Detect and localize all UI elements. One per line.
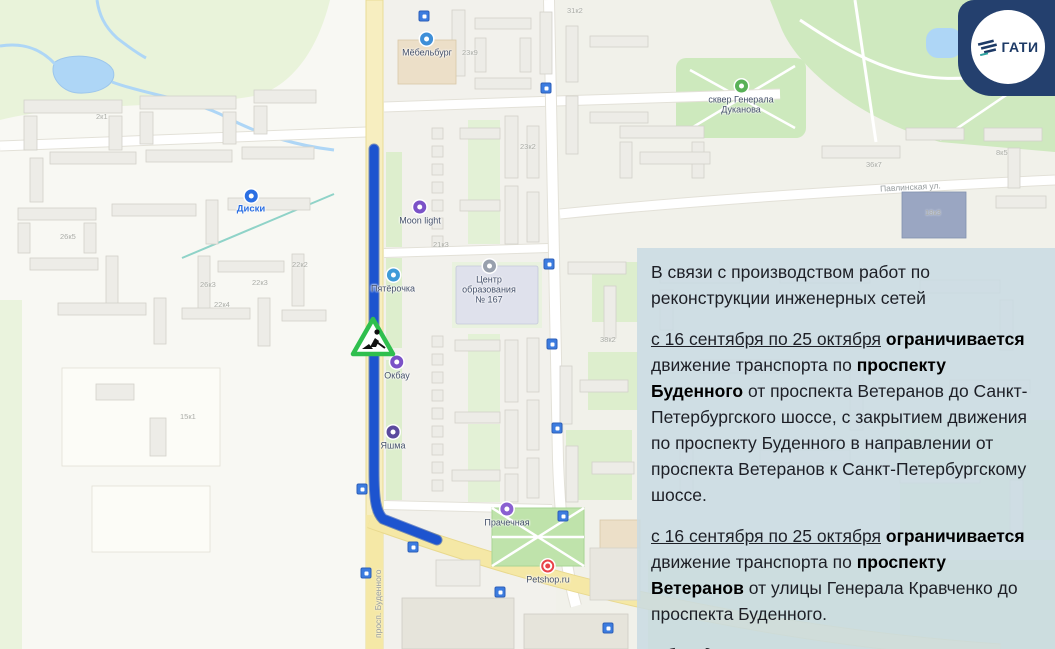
poi-yashma[interactable]: Яшма: [381, 426, 406, 451]
text-segment: В связи с производством работ по реконст…: [651, 262, 930, 308]
poi-icon: [501, 503, 514, 516]
poi-label: Окбау: [384, 371, 410, 381]
text-segment: Объезд: проспект Ветеранов.: [651, 645, 905, 649]
poi-label: Диски: [237, 205, 266, 215]
bus-stop-icon[interactable]: [541, 83, 552, 94]
bus-stop-icon[interactable]: [419, 11, 430, 22]
map-container[interactable]: Диски Мёбельбург Moon light Пятёрочка Це…: [0, 0, 1055, 649]
roadworks-triangle-icon: [350, 316, 396, 358]
panel-paragraph: с 16 сентября по 25 октября ограничивает…: [651, 523, 1039, 627]
building-label: 21к3: [433, 240, 449, 249]
poi-icon: [420, 33, 433, 46]
poi-label: сквер Генерала Дуканова: [698, 95, 784, 115]
poi-skver-dukanova[interactable]: сквер Генерала Дуканова: [698, 80, 784, 115]
poi-mebelburg[interactable]: Мёбельбург: [402, 33, 452, 58]
street-label-budennogo: просп. Буденного: [373, 570, 383, 638]
text-segment: движение транспорта по: [651, 552, 857, 572]
poi-icon: [387, 269, 400, 282]
bus-stop-icon[interactable]: [361, 568, 372, 579]
text-segment: движение транспорта по: [651, 355, 857, 375]
text-segment: ограничивается: [886, 526, 1025, 546]
text-segment: с 16 сентября по 25 октября: [651, 329, 881, 349]
building-label: 38к2: [600, 335, 616, 344]
bus-stop-icon[interactable]: [408, 542, 419, 553]
text-segment: ограничивается: [886, 329, 1025, 349]
poi-icon: [386, 426, 399, 439]
poi-label: Мёбельбург: [402, 48, 452, 58]
gati-stripes-icon: [977, 38, 999, 56]
panel-paragraph: с 16 сентября по 25 октября ограничивает…: [651, 326, 1039, 508]
building-label: 22к3: [252, 278, 268, 287]
gati-logo-circle: ГАТИ: [971, 10, 1045, 84]
bus-stop-icon[interactable]: [357, 484, 368, 495]
bus-stop-icon[interactable]: [603, 623, 614, 634]
bus-stop-icon[interactable]: [558, 511, 569, 522]
building-label: 15к1: [180, 412, 196, 421]
bus-stop-icon[interactable]: [547, 339, 558, 350]
poi-label: Прачечная: [484, 518, 529, 528]
bus-stop-icon[interactable]: [495, 587, 506, 598]
poi-pyaterochka[interactable]: Пятёрочка: [371, 269, 415, 294]
poi-icon: [735, 80, 748, 93]
gati-logo-badge: ГАТИ: [958, 0, 1055, 96]
gati-logo-text: ГАТИ: [1001, 39, 1038, 55]
building-label: 22к2: [292, 260, 308, 269]
poi-label: Центр образования № 167: [460, 275, 518, 305]
poi-petshop[interactable]: Petshop.ru: [526, 560, 570, 585]
building-label: 26к5: [60, 232, 76, 241]
poi-icon: [542, 560, 555, 573]
poi-icon: [245, 190, 258, 203]
poi-diski[interactable]: Диски: [237, 190, 266, 215]
building-label: 18к3: [925, 208, 941, 217]
building-label: 22к4: [214, 300, 230, 309]
poi-label: Petshop.ru: [526, 575, 570, 585]
poi-label: Moon light: [399, 216, 441, 226]
announcement-panel: В связи с производством работ по реконст…: [637, 248, 1055, 649]
poi-label: Пятёрочка: [371, 284, 415, 294]
poi-icon: [483, 260, 496, 273]
poi-moon-light[interactable]: Moon light: [399, 201, 441, 226]
building-label: 36к7: [866, 160, 882, 169]
panel-paragraph: В связи с производством работ по реконст…: [651, 259, 1039, 311]
poi-prachechnaya[interactable]: Прачечная: [484, 503, 529, 528]
bus-stop-icon[interactable]: [552, 423, 563, 434]
poi-label: Яшма: [381, 441, 406, 451]
building-label: 31к2: [567, 6, 583, 15]
bus-stop-icon[interactable]: [544, 259, 555, 270]
panel-paragraph: Объезд: проспект Ветеранов.: [651, 642, 1039, 649]
building-label: 26к3: [200, 280, 216, 289]
building-label: 23к9: [462, 48, 478, 57]
poi-icon: [414, 201, 427, 214]
building-label: 2к1: [96, 112, 108, 121]
text-segment: с 16 сентября по 25 октября: [651, 526, 881, 546]
building-label: 23к2: [520, 142, 536, 151]
poi-education-center[interactable]: Центр образования № 167: [460, 260, 518, 305]
building-label: 8к5: [996, 148, 1008, 157]
poi-okbau[interactable]: Окбау: [384, 356, 410, 381]
